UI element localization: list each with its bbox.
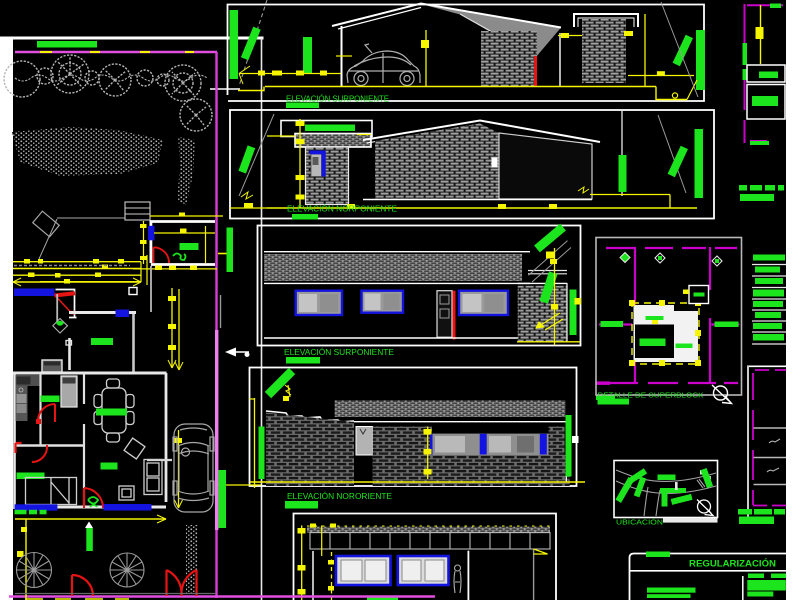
svg-text:UBICACIÓN: UBICACIÓN [616,518,663,527]
svg-text:ELEVACIÓN NORORIENTE: ELEVACIÓN NORORIENTE [287,492,392,501]
svg-text:ELEVACIÓN NORPONIENTE: ELEVACIÓN NORPONIENTE [287,205,397,214]
svg-text:ELEVACIÓN SURPONIENTE: ELEVACIÓN SURPONIENTE [284,348,394,357]
svg-text:DETALLE DE SUPERBLOCK: DETALLE DE SUPERBLOCK [598,393,704,400]
svg-text:ELEVACIÓN SURPONIENTE: ELEVACIÓN SURPONIENTE [286,95,389,104]
svg-text:REGULARIZACIÓN: REGULARIZACIÓN [689,558,776,570]
